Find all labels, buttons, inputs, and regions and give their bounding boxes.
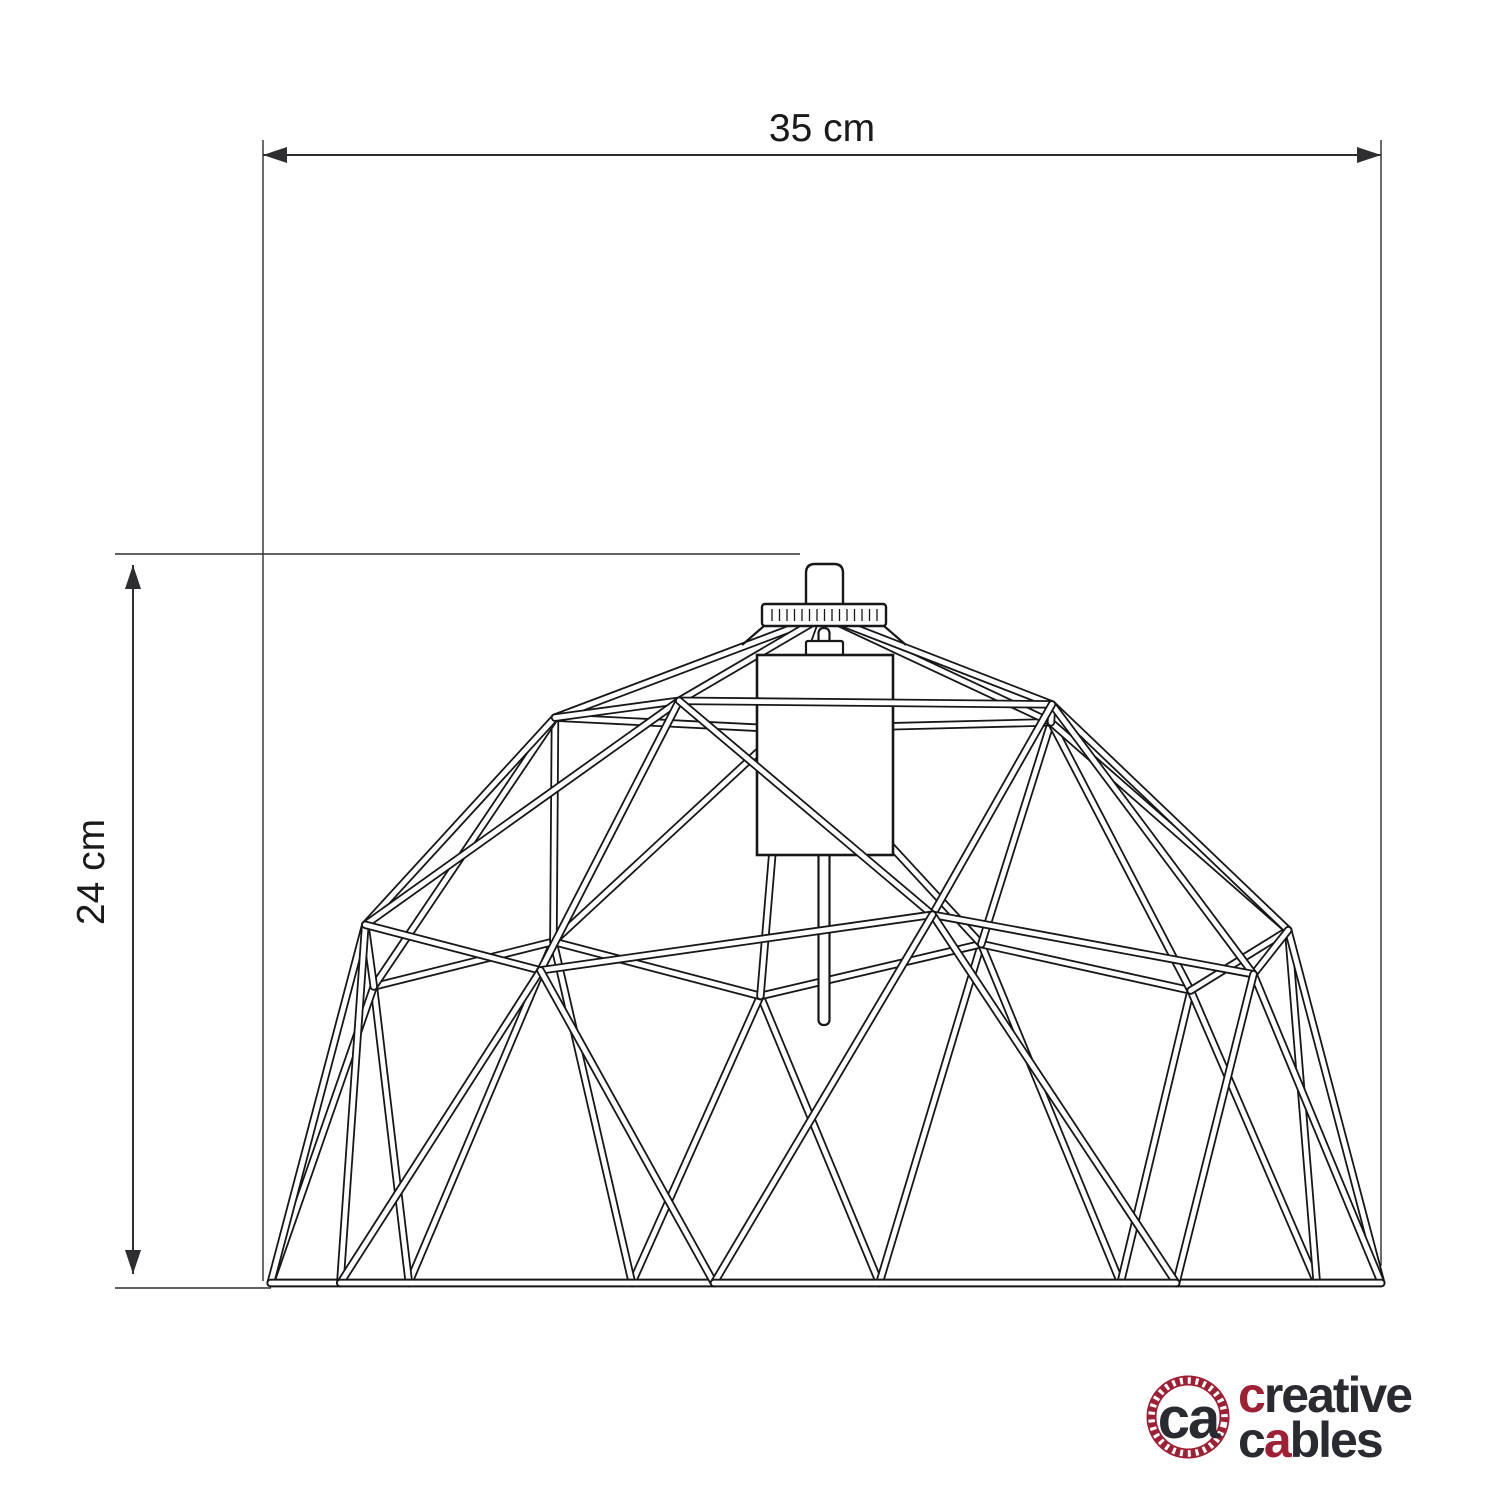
dome-strut <box>933 704 1052 914</box>
dome-strut <box>541 970 715 1283</box>
dome-strut <box>1052 704 1288 930</box>
arrow-down-icon <box>125 1250 141 1274</box>
arrow-right-icon <box>1357 147 1381 163</box>
dome-strut <box>340 970 540 1283</box>
dome-strut <box>374 987 409 1284</box>
dome-strut <box>1121 991 1191 1284</box>
dome-strut <box>981 722 1051 944</box>
dome-strut <box>879 944 981 1283</box>
dome-strut <box>933 915 1177 1283</box>
dome-strut <box>981 944 1120 1283</box>
dome-strut <box>760 944 981 996</box>
height-dimension-label: 24 cm <box>70 819 113 925</box>
arrow-left-icon <box>263 147 287 163</box>
dome-strut <box>365 718 555 925</box>
technical-drawing: 35 cm 24 cm ca creative <box>0 0 1500 1500</box>
logo-monogram: ca <box>1158 1386 1221 1451</box>
dome-strut <box>1052 704 1254 974</box>
width-dimension-label: 35 cm <box>769 107 875 150</box>
cap-nipple <box>806 564 843 608</box>
dome-strut <box>409 942 554 1283</box>
dome-strut <box>541 915 933 971</box>
dome-strut <box>553 718 555 942</box>
arrow-up-icon <box>125 565 141 589</box>
dome-strut <box>541 701 680 971</box>
logo-line2: cables <box>1238 1412 1382 1468</box>
dome-strut <box>1254 974 1382 1283</box>
dome-strut <box>981 944 1190 990</box>
dome-strut <box>365 701 679 925</box>
brand-logo: ca creative cables <box>1145 1367 1413 1468</box>
